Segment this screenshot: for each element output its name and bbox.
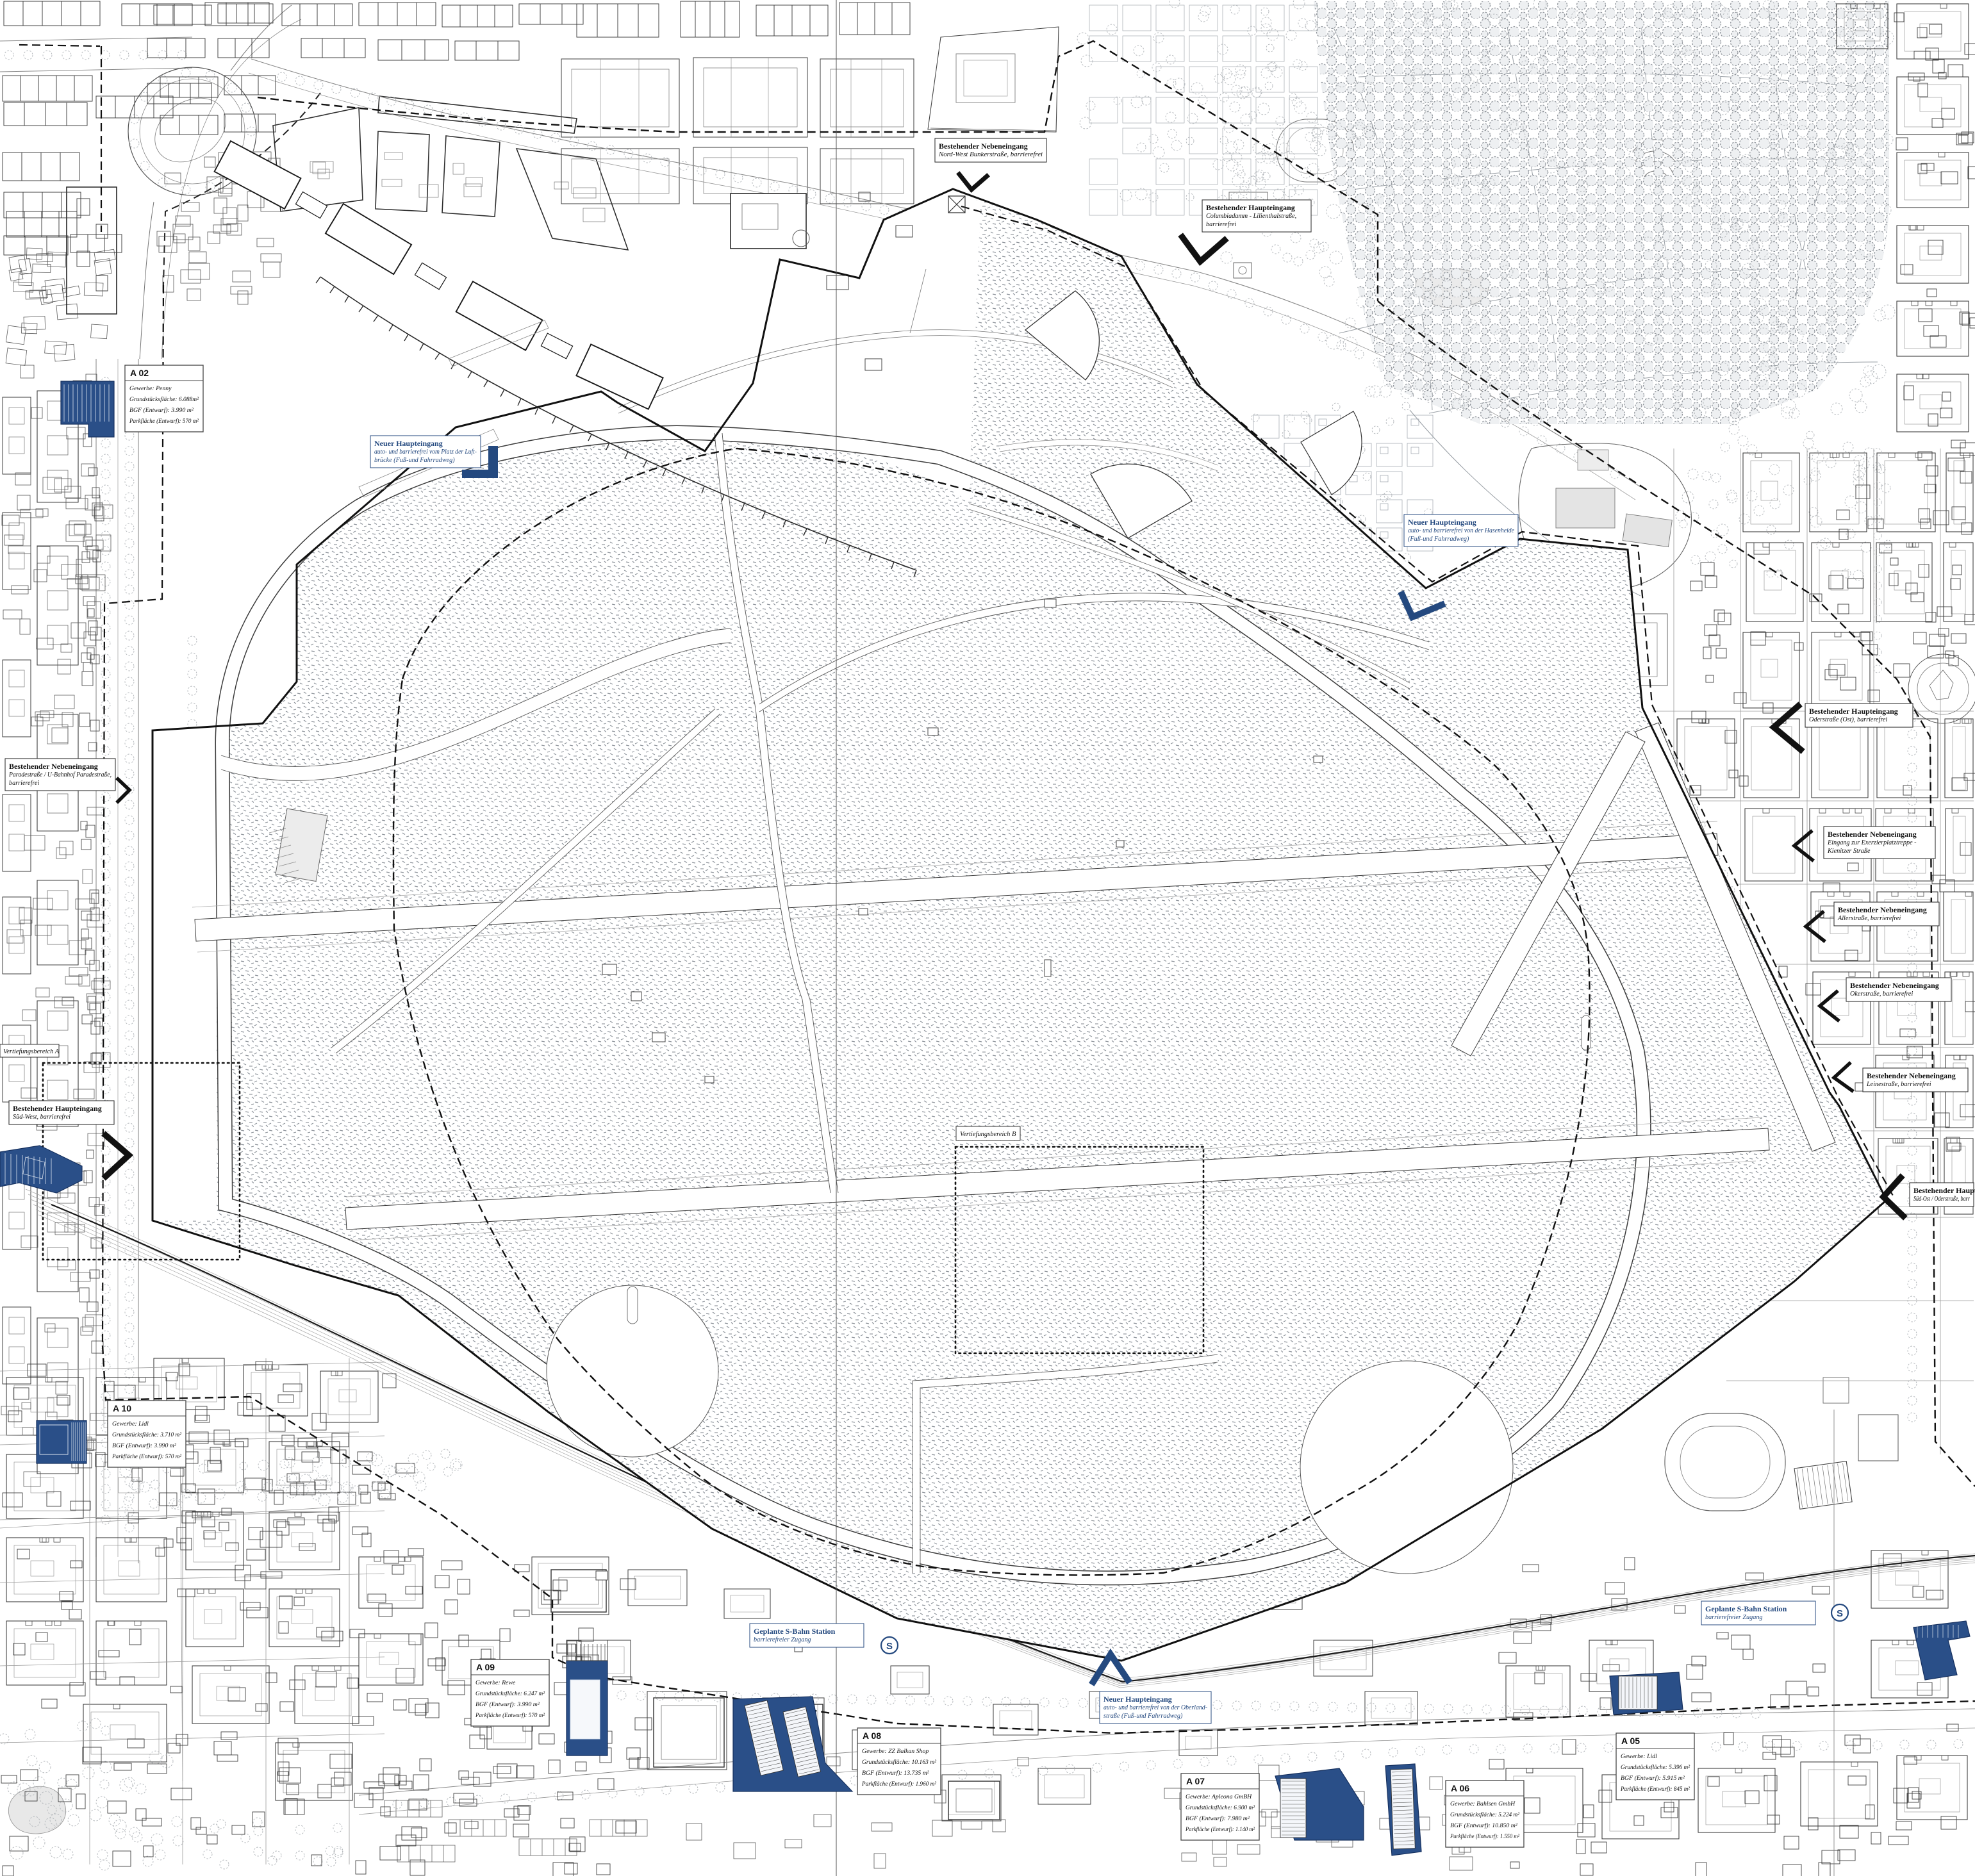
svg-text:Bestehender Nebeneingang: Bestehender Nebeneingang xyxy=(1838,905,1927,914)
svg-text:A 10: A 10 xyxy=(113,1403,131,1413)
svg-text:Parkfläche (Entwurf): 1.550 m²: Parkfläche (Entwurf): 1.550 m² xyxy=(1450,1833,1520,1840)
svg-text:Oderstraße (Ost), barrierefrei: Oderstraße (Ost), barrierefrei xyxy=(1809,716,1887,723)
svg-text:Bestehender Haupteingang: Bestehender Haupteingang xyxy=(1206,203,1295,212)
svg-text:auto- und barrierefrei von der: auto- und barrierefrei von der Oberland- xyxy=(1103,1704,1208,1711)
svg-text:Grundstücksfläche: 5.396 m²: Grundstücksfläche: 5.396 m² xyxy=(1621,1764,1690,1771)
svg-text:Grundstücksfläche: 10.163 m²: Grundstücksfläche: 10.163 m² xyxy=(862,1759,937,1766)
svg-text:Kienitzer Straße: Kienitzer Straße xyxy=(1827,848,1871,855)
svg-text:A 02: A 02 xyxy=(130,368,149,378)
svg-text:Neuer Haupteingang: Neuer Haupteingang xyxy=(374,439,443,448)
svg-text:Süd-Ost / Oderstraße, barr: Süd-Ost / Oderstraße, barr xyxy=(1913,1196,1970,1203)
svg-text:Bestehender Nebeneingang: Bestehender Nebeneingang xyxy=(1850,981,1939,990)
svg-text:A 06: A 06 xyxy=(1451,1783,1469,1793)
svg-text:A 09: A 09 xyxy=(476,1662,495,1672)
svg-text:brücke (Fuß-und Fahrradweg): brücke (Fuß-und Fahrradweg) xyxy=(374,457,455,464)
svg-text:Grundstücksfläche: 6.088m²: Grundstücksfläche: 6.088m² xyxy=(129,396,199,403)
svg-text:Bestehender Haupteingang: Bestehender Haupteingang xyxy=(1913,1186,1975,1195)
svg-text:Gewerbe: Bahlsen GmbH: Gewerbe: Bahlsen GmbH xyxy=(1450,1800,1516,1807)
svg-text:Geplante S-Bahn Station: Geplante S-Bahn Station xyxy=(1705,1604,1787,1613)
svg-text:Gewerbe: Penny: Gewerbe: Penny xyxy=(129,385,172,392)
svg-text:Bestehender Haupteingang: Bestehender Haupteingang xyxy=(1809,707,1898,716)
svg-text:Gewerbe: Lidl: Gewerbe: Lidl xyxy=(112,1420,149,1428)
svg-text:Parkfläche (Entwurf): 845 m²: Parkfläche (Entwurf): 845 m² xyxy=(1620,1786,1690,1793)
svg-text:Neuer Haupteingang: Neuer Haupteingang xyxy=(1408,518,1476,527)
svg-text:Allerstraße, barrierefrei: Allerstraße, barrierefrei xyxy=(1837,915,1901,922)
svg-text:Süd-West, barrierefrei: Süd-West, barrierefrei xyxy=(13,1114,70,1121)
svg-text:BGF (Entwurf): 5.915 m²: BGF (Entwurf): 5.915 m² xyxy=(1621,1775,1685,1782)
svg-text:Gewerbe: Rewe: Gewerbe: Rewe xyxy=(475,1679,516,1686)
svg-text:straße (Fuß-und Fahrradweg): straße (Fuß-und Fahrradweg) xyxy=(1103,1713,1183,1720)
svg-text:barrierefreier Zugang: barrierefreier Zugang xyxy=(1705,1614,1763,1621)
svg-text:BGF (Entwurf): 3.990 m²: BGF (Entwurf): 3.990 m² xyxy=(475,1701,540,1708)
svg-text:barrierefrei: barrierefrei xyxy=(1206,221,1237,228)
svg-text:BGF (Entwurf): 7.980 m²: BGF (Entwurf): 7.980 m² xyxy=(1186,1815,1250,1822)
svg-text:Bestehender Nebeneingang: Bestehender Nebeneingang xyxy=(939,142,1028,151)
svg-text:Bestehender Nebeneingang: Bestehender Nebeneingang xyxy=(1828,830,1917,839)
svg-text:Neuer Haupteingang: Neuer Haupteingang xyxy=(1103,1695,1172,1704)
svg-text:Nord-West Bunkerstraße, barrie: Nord-West Bunkerstraße, barrierefrei xyxy=(938,151,1043,158)
svg-text:Parkfläche (Entwurf): 1.960 m²: Parkfläche (Entwurf): 1.960 m² xyxy=(861,1781,937,1788)
svg-text:Paradestraße / U-Bahnhof Parad: Paradestraße / U-Bahnhof Paradestraße, xyxy=(8,771,112,778)
svg-text:Columbiadamm - Lilienthalstraß: Columbiadamm - Lilienthalstraße, xyxy=(1206,213,1296,220)
svg-text:Grundstücksfläche: 3.710 m²: Grundstücksfläche: 3.710 m² xyxy=(112,1431,182,1438)
svg-text:Gewerbe: Apleona GmBH: Gewerbe: Apleona GmBH xyxy=(1186,1793,1252,1800)
svg-text:S: S xyxy=(1837,1608,1843,1619)
svg-text:Grundstücksfläche: 6.900 m²: Grundstücksfläche: 6.900 m² xyxy=(1186,1804,1255,1811)
svg-text:Vertiefungsbereich B: Vertiefungsbereich B xyxy=(960,1131,1016,1138)
svg-text:Grundstücksfläche: 5.224 m²: Grundstücksfläche: 5.224 m² xyxy=(1450,1811,1520,1818)
svg-text:BGF (Entwurf): 10.850 m²: BGF (Entwurf): 10.850 m² xyxy=(1450,1822,1518,1829)
svg-text:BGF (Entwurf): 3.990 m²: BGF (Entwurf): 3.990 m² xyxy=(129,407,194,414)
svg-text:Eingang zur Exerzierplatztrepp: Eingang zur Exerzierplatztreppe - xyxy=(1827,839,1917,846)
svg-text:BGF (Entwurf): 13.735 m²: BGF (Entwurf): 13.735 m² xyxy=(862,1770,930,1777)
svg-text:S: S xyxy=(886,1641,893,1652)
svg-text:Bestehender Haupteingang: Bestehender Haupteingang xyxy=(13,1104,102,1113)
svg-text:A 05: A 05 xyxy=(1621,1736,1640,1746)
svg-text:A 08: A 08 xyxy=(863,1731,881,1741)
svg-text:Parkfläche (Entwurf): 570 m²: Parkfläche (Entwurf): 570 m² xyxy=(112,1453,182,1460)
svg-text:BGF (Entwurf): 3.990 m²: BGF (Entwurf): 3.990 m² xyxy=(112,1442,177,1449)
svg-text:Okerstraße, barrierefrei: Okerstraße, barrierefrei xyxy=(1850,991,1913,998)
svg-text:A 07: A 07 xyxy=(1186,1776,1205,1786)
svg-text:Grundstücksfläche: 6.247 m²: Grundstücksfläche: 6.247 m² xyxy=(475,1690,545,1697)
svg-text:Leinestraße, barrierefrei: Leinestraße, barrierefrei xyxy=(1866,1081,1931,1088)
svg-text:Parkfläche (Entwurf): 570 m²: Parkfläche (Entwurf): 570 m² xyxy=(129,418,199,425)
svg-text:Gewerbe: Lidl: Gewerbe: Lidl xyxy=(1621,1753,1657,1760)
svg-text:barrierefrei: barrierefrei xyxy=(9,780,40,787)
svg-text:Bestehender Nebeneingang: Bestehender Nebeneingang xyxy=(9,762,98,771)
svg-text:Parkfläche (Entwurf): 570 m²: Parkfläche (Entwurf): 570 m² xyxy=(475,1712,545,1719)
svg-text:Vertiefungsbereich A: Vertiefungsbereich A xyxy=(3,1048,60,1055)
svg-text:Gewerbe: ZZ Balkan Shop: Gewerbe: ZZ Balkan Shop xyxy=(862,1748,929,1755)
svg-text:Bestehender Nebeneingang: Bestehender Nebeneingang xyxy=(1867,1071,1956,1080)
svg-text:Parkfläche (Entwurf): 1.140 m²: Parkfläche (Entwurf): 1.140 m² xyxy=(1185,1826,1255,1833)
svg-text:(Fuß-und Fahrradweg): (Fuß-und Fahrradweg) xyxy=(1408,536,1469,543)
svg-text:auto- und barrierefrei von der: auto- und barrierefrei von der Hasenheid… xyxy=(1408,527,1514,534)
svg-text:auto- und barrierefrei vom Pla: auto- und barrierefrei vom Platz der Luf… xyxy=(374,448,477,456)
svg-text:Geplante S-Bahn Station: Geplante S-Bahn Station xyxy=(754,1627,836,1636)
svg-text:barrierefreier Zugang: barrierefreier Zugang xyxy=(754,1636,811,1643)
